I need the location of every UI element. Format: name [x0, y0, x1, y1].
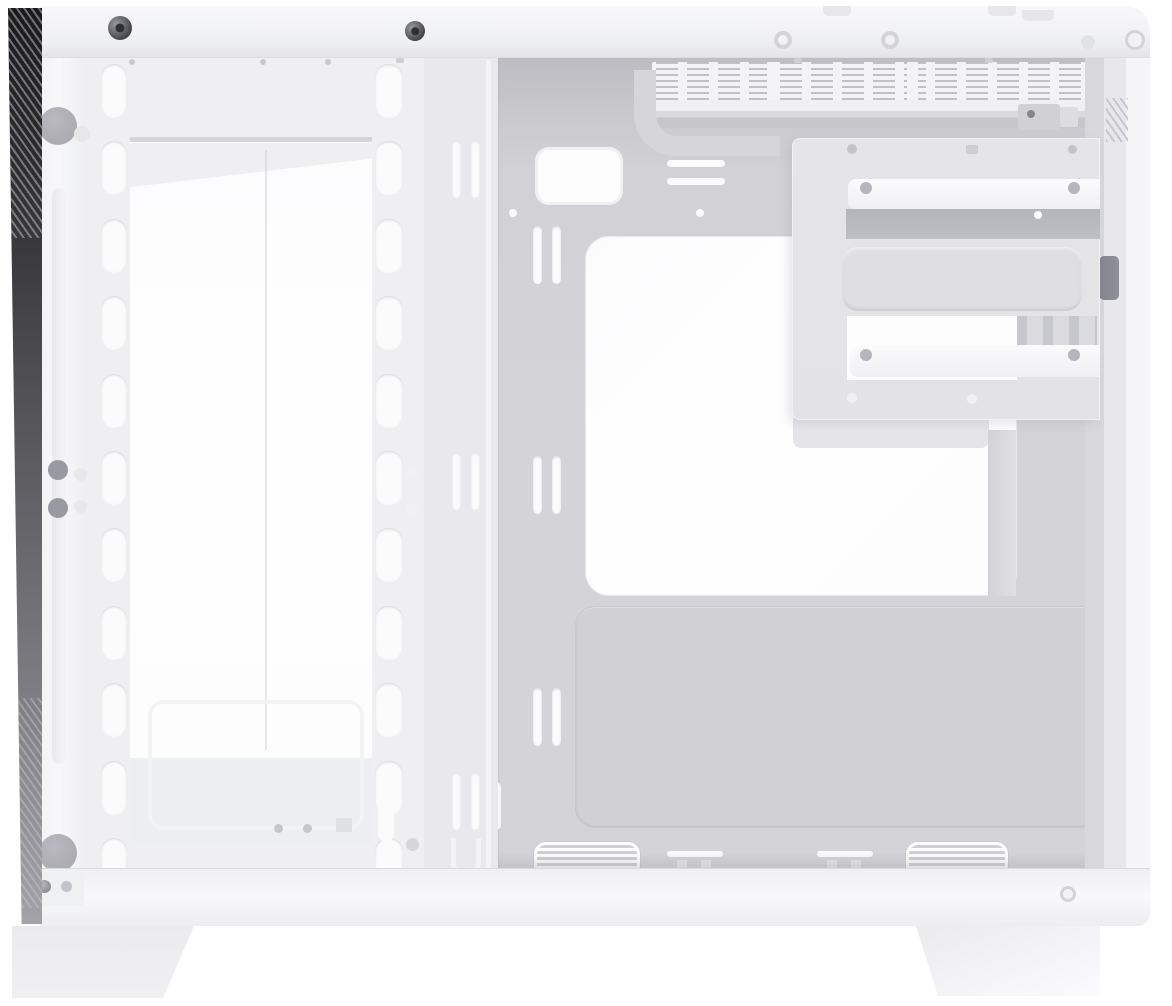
- opening-inner-lip: [148, 700, 364, 830]
- rail-oval-slot: [378, 778, 394, 842]
- fan-slot: [375, 64, 403, 118]
- pillar-hole-dark: [48, 498, 68, 518]
- top-corner-screw: [1125, 30, 1145, 50]
- standoff-hole: [696, 209, 704, 217]
- case-foot-left: [12, 926, 194, 998]
- cage-rail-screw-hole: [1068, 182, 1080, 194]
- cage-flange-hole: [847, 144, 857, 154]
- cage-rail-top: [848, 179, 1100, 209]
- cage-rail-bottom: [850, 345, 1100, 377]
- rear-panel-mid: [1104, 26, 1126, 876]
- fan-slot: [101, 141, 127, 195]
- top-vent-gap-right: [907, 62, 918, 100]
- top-thumbscrew-front: [108, 16, 132, 40]
- cage-flange-hole: [1068, 145, 1077, 154]
- cage-recess-dot: [1034, 211, 1042, 219]
- pillar-access-hole-top: [39, 107, 77, 145]
- pillar-notch-hole: [74, 126, 90, 142]
- tie-slots-column-mid: [452, 452, 480, 510]
- rail-round-hole: [406, 838, 419, 851]
- fan-slot: [101, 374, 127, 428]
- psu-stamp-panel: [575, 606, 1102, 828]
- cage-recess-mid: [842, 247, 1082, 311]
- fan-slot: [101, 219, 127, 273]
- bottom-frame-rail: [40, 868, 1150, 926]
- top-frame-rail: [40, 6, 1150, 58]
- top-edge-tab: [1022, 10, 1054, 21]
- fan-slot: [375, 141, 403, 195]
- fan-slot: [101, 528, 127, 582]
- rail-rivet-dash: [985, 58, 993, 63]
- cage-bottom-hole: [847, 393, 857, 403]
- bottom-corner-screw: [1060, 886, 1076, 902]
- cage-bottom-hole: [967, 394, 977, 404]
- rail-rivet-dash: [794, 58, 802, 63]
- rear-expansion-slot: [1099, 256, 1119, 300]
- front-opening: [130, 142, 372, 844]
- top-edge-tab: [988, 6, 1016, 16]
- rear-bracket-block: [1018, 104, 1060, 130]
- cable-grommet-top: [535, 147, 623, 205]
- fan-slot: [375, 219, 403, 273]
- fan-slot: [375, 296, 403, 350]
- window-rear-post: [988, 430, 1016, 596]
- cage-rail-screw-hole: [1068, 349, 1080, 361]
- tie-slots-tray-top: [533, 226, 561, 284]
- fan-slot: [375, 451, 403, 505]
- cage-rail-screw-hole: [860, 349, 872, 361]
- standoff-hole: [509, 209, 517, 217]
- tie-slots-tray-mid: [533, 456, 561, 514]
- shelf-clip-block: [336, 818, 352, 832]
- cage-rail-screw-hole: [860, 182, 872, 194]
- rail-screw-hole: [406, 504, 418, 516]
- fan-rail-left: [97, 64, 131, 892]
- column-highlight: [486, 60, 491, 890]
- rail-rivet-dash: [396, 58, 404, 63]
- top-screw-mid: [405, 21, 425, 41]
- frame-pilot-hole: [325, 59, 331, 65]
- top-edge-tab: [823, 6, 851, 16]
- rail-screw-hole: [406, 467, 418, 479]
- product-photo-canvas: [0, 0, 1172, 1006]
- case-foot-right: [916, 926, 1100, 996]
- rear-bracket-block-small: [1060, 107, 1078, 127]
- fan-slot: [101, 64, 127, 118]
- glass-hatch-top: [8, 8, 42, 238]
- tie-slots-column-top: [452, 140, 480, 198]
- fan-slot: [375, 528, 403, 582]
- opening-reflection-wedge: [130, 143, 372, 195]
- fan-slot: [101, 296, 127, 350]
- pillar-access-hole-bottom: [39, 834, 77, 872]
- fan-rail-right: [372, 64, 406, 892]
- rear-panel-outer: [1126, 6, 1150, 926]
- top-ring-hole: [881, 31, 899, 49]
- tie-slots-column-bottom: [452, 772, 480, 830]
- fan-slot: [101, 451, 127, 505]
- fan-slot: [101, 683, 127, 737]
- opening-seam: [265, 150, 267, 750]
- tie-slots-tray-bottom: [533, 688, 561, 746]
- pillar-hole-light: [74, 500, 87, 513]
- fan-slot: [101, 761, 127, 815]
- pillar-hole-light: [74, 468, 87, 481]
- glass-hatch-bottom: [8, 698, 42, 908]
- top-ring-hole: [774, 31, 792, 49]
- cable-slot-horizontal-2: [667, 178, 725, 185]
- pillar-hole-dark: [48, 460, 68, 480]
- glass-edge: [8, 8, 42, 924]
- rear-vent-hatch: [1106, 98, 1128, 142]
- fan-slot: [101, 606, 127, 660]
- frame-pilot-hole: [260, 59, 266, 65]
- cage-lower-flange-shadow: [793, 418, 989, 448]
- cable-slot-horizontal-1: [667, 160, 725, 167]
- shelf-screw-hole: [303, 824, 312, 833]
- rear-bracket-hole: [1027, 110, 1035, 118]
- bracket-screw-light: [61, 881, 72, 892]
- fan-slot: [375, 606, 403, 660]
- fan-slot: [375, 683, 403, 737]
- cable-channel-lip: [634, 70, 780, 156]
- top-countersunk-hole: [1081, 35, 1095, 49]
- cage-recess-dark: [846, 209, 1100, 239]
- cage-flange-square: [966, 145, 978, 154]
- shelf-screw-hole: [274, 824, 283, 833]
- fan-slot: [375, 374, 403, 428]
